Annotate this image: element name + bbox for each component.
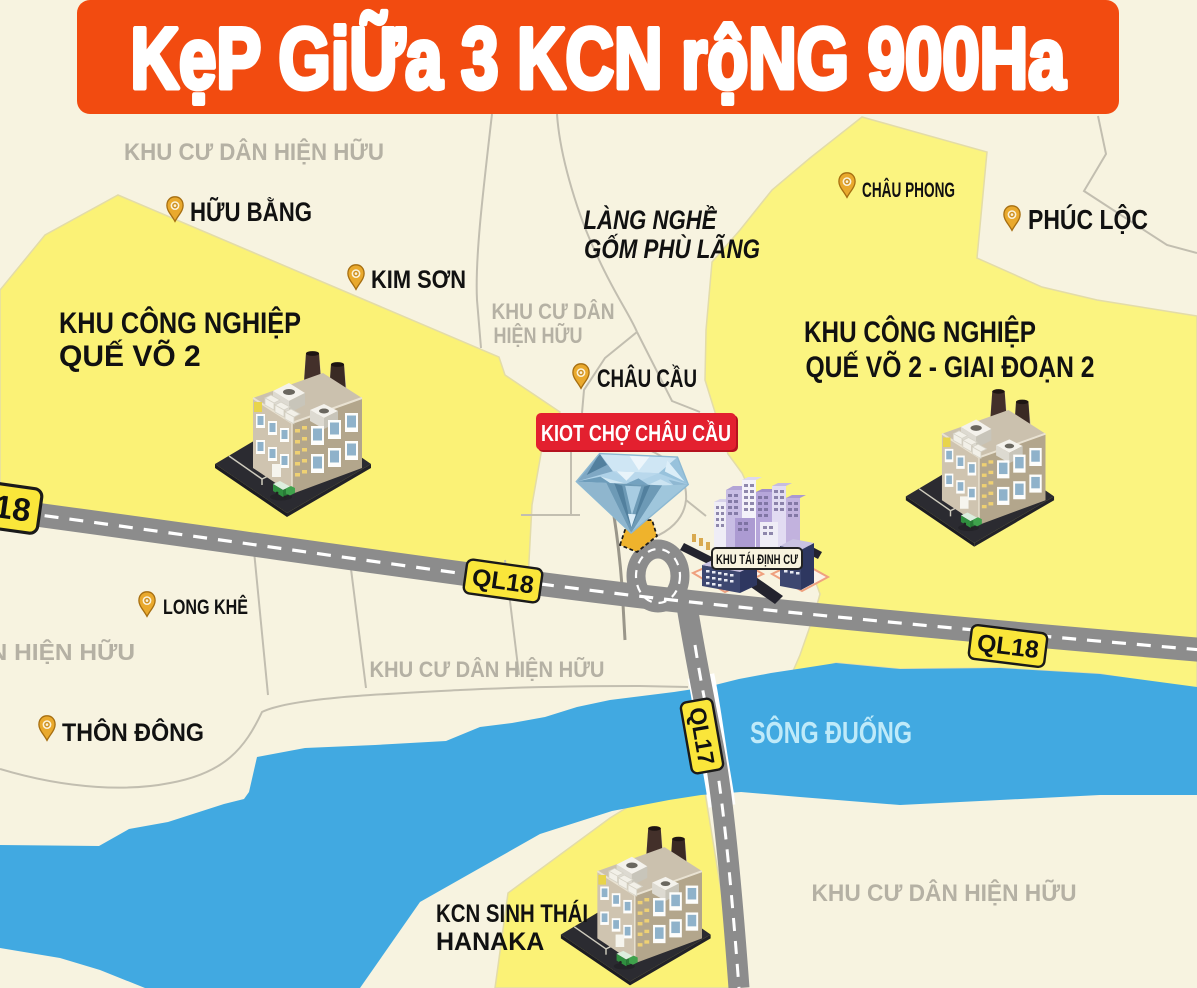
svg-text:GỐM PHÙ LÃNG: GỐM PHÙ LÃNG	[584, 233, 760, 264]
svg-text:KẹP GiỮa 3 KCN rộNG 900Ha: KẹP GiỮa 3 KCN rộNG 900Ha	[131, 11, 1067, 107]
svg-text:LONG KHÊ: LONG KHÊ	[163, 595, 248, 619]
svg-text:KHU CƯ DÂN HIỆN HỮU: KHU CƯ DÂN HIỆN HỮU	[370, 657, 605, 682]
svg-text:CHÂU CẦU: CHÂU CẦU	[597, 363, 697, 393]
svg-text:ÂN HIỆN HỮU: ÂN HIỆN HỮU	[0, 638, 135, 665]
svg-text:KHU CƯ DÂN: KHU CƯ DÂN	[492, 299, 615, 324]
svg-text:KIM SƠN: KIM SƠN	[371, 266, 466, 294]
svg-text:PHÚC LỘC: PHÚC LỘC	[1028, 203, 1148, 235]
svg-text:HANAKA: HANAKA	[436, 928, 544, 956]
svg-text:QUẾ VÕ 2: QUẾ VÕ 2	[59, 339, 201, 373]
svg-text:CHÂU PHONG: CHÂU PHONG	[862, 178, 955, 202]
svg-text:KHU CÔNG NGHIỆP: KHU CÔNG NGHIỆP	[804, 315, 1036, 349]
svg-text:KHU CƯ DÂN HIỆN HỮU: KHU CƯ DÂN HIỆN HỮU	[124, 138, 384, 166]
svg-text:QUẾ VÕ 2 - GIAI ĐOẠN 2: QUẾ VÕ 2 - GIAI ĐOẠN 2	[806, 350, 1095, 384]
svg-text:HỮU BẰNG: HỮU BẰNG	[190, 196, 312, 227]
svg-text:SÔNG ĐUỐNG: SÔNG ĐUỐNG	[750, 714, 912, 750]
svg-text:HIỆN HỮU: HIỆN HỮU	[494, 323, 583, 348]
svg-text:KHU CÔNG NGHIỆP: KHU CÔNG NGHIỆP	[59, 306, 301, 340]
svg-text:KIOT CHỢ CHÂU CẦU: KIOT CHỢ CHÂU CẦU	[541, 419, 731, 446]
svg-text:THÔN ĐÔNG: THÔN ĐÔNG	[62, 717, 204, 747]
svg-text:LÀNG NGHỀ: LÀNG NGHỀ	[584, 204, 718, 235]
svg-text:KCN SINH THÁI: KCN SINH THÁI	[436, 899, 588, 928]
svg-text:KHU TÁI ĐỊNH CƯ: KHU TÁI ĐỊNH CƯ	[716, 552, 799, 567]
svg-text:KHU CƯ DÂN HIỆN HỮU: KHU CƯ DÂN HIỆN HỮU	[812, 879, 1077, 907]
